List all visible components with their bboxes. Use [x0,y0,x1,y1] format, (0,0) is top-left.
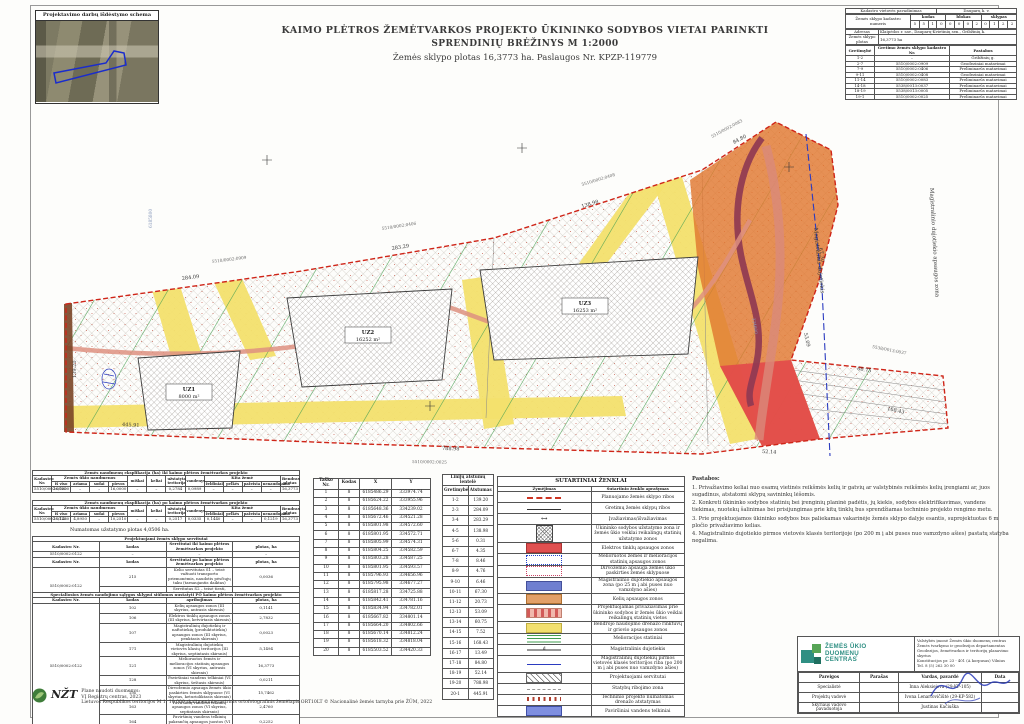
edge-dimension: 788.98 [442,446,460,452]
legend-row: Projektuojamas privažiavimas prie ūkinin… [498,605,685,622]
table-cell: 8 [339,589,360,597]
legend-row: Ūkininko sodybos užstatymo zona ir žemės… [498,525,685,543]
table-row: 14-157.52 [443,628,494,638]
table-cell [860,692,899,702]
table-row: 5510/0002:012216,0000––16,0000––0,27840,… [33,487,300,492]
table-cell: 16,0000 [52,487,71,492]
table-cell: 0,0211 [233,676,300,686]
table-cell: 6185796.93 [360,572,392,580]
table-cell: 5510/0002:0122 [33,487,52,492]
table-cell: 0,1141 [233,603,300,613]
data-source-footer: NŽT Plane naudoti duomenys: VĮ Registrų … [32,688,462,706]
project-title-line2: SPRENDINIŲ BRĖŽINYS M 1:2000 [280,38,770,52]
table-cell: 283.29 [468,516,494,526]
legend-description: Gretimų žemės sklypų ribos [591,503,685,514]
table-row: 1886185670.14334812.24 [314,630,431,638]
table-cell: 13 [314,589,339,597]
table-row: 786185805.99334574.31 [314,539,431,547]
legend-row: Gretimų žemės sklypų ribos [498,503,685,514]
table-cell: 4.35 [468,546,494,556]
table-cell: 6185670.14 [360,630,392,638]
table-cell: 4-5 [443,526,469,536]
legend-row: Dirvožemio apsauga žemės ūkio paskirties… [498,566,685,578]
explication-before-table: Žemės naudmenų eksplikacija (ha) iki kai… [32,470,300,493]
legend-swatch-cell [498,706,592,717]
table-cell: 334420.33 [392,647,431,655]
table-cell: 53.09 [468,607,494,617]
table-cell: 128 [99,676,166,686]
project-title-line3: Žemės sklypo plotas 16,3773 ha. Paslaugo… [280,52,770,66]
water-fill-icon [526,706,562,716]
table-cell: 8 [339,539,360,547]
table-cell: 16,3773 [233,657,300,676]
table-cell: 5 [314,523,339,531]
table-cell: 334818.04 [392,639,431,647]
aerial-photo [36,21,158,102]
table-row: 5510/0002:0122102Kelių apsaugos zonos (I… [33,603,300,613]
table-cell: 6185618.32 [360,639,392,647]
title-block-organization: ŽEMĖS ŪKIO DUOMENŲ CENTRAS Valstybės įmo… [797,636,1020,714]
legend-description: Magistralinio dujotiekio apsaugos zona (… [591,577,685,594]
pink-el-icon [526,608,562,618]
table-row: 1186185796.93334656.96 [314,572,431,580]
table-cell: 0,2784 [166,487,185,492]
table-cell: 6185804.25 [360,547,392,555]
table-cell: Skyriaus vadovo pavaduotoja [799,702,860,713]
edge-dimension: 445.91 [122,422,140,429]
table-cell: 6185486.29 [360,489,392,497]
table-cell: 5,1494 [233,642,300,656]
table-cell: 0.31 [468,536,494,546]
schema-title: Projektavimo darbų išdėstymo schema [36,11,158,21]
table-cell: 334574.31 [392,539,431,547]
table-row: 1386185817.28334725.88 [314,589,431,597]
legend-row: dMagistralinis dujotiekis [498,644,685,655]
table-row: 19-15510/0002:0025Preliminarūs matavimai [846,94,1017,99]
table-cell: 8 [339,639,360,647]
table-cell: 334677.27 [392,581,431,589]
table-cell: 8 [339,498,360,506]
legend-swatch-cell [498,554,592,566]
table-cell: 334656.96 [392,572,431,580]
table-cell: 334521.28 [392,514,431,522]
legend-swatch-cell [498,633,592,644]
table-cell: Paviršiniai vandens telkiniai (VI skyriu… [166,676,233,686]
table-row: 286185624.22333955.96 [314,498,431,506]
distances-title: Linijų atstumų lentelė [443,475,494,486]
table-cell: 6.46 [468,577,494,587]
table-row: 11-1220.73 [443,597,494,607]
legend-table: SUTARTINIAI ŽENKLAI Žymėjimas Sutartinio… [497,476,685,717]
table-cell: 8 [339,556,360,564]
zudc-logo-icon [800,643,822,665]
table-row: 886185804.25334582.59 [314,547,431,555]
blue-dot-icon [526,555,562,565]
neighbour-cad-label: 5510/0002:0406 [381,221,416,231]
table-cell: 4 [314,514,339,522]
table-row: Skyriaus vadovo pavaduotojaJustinas Kači… [799,702,1019,713]
vietove-value: Dauparų k. v. [937,9,1017,14]
legend-description: Statybų ribojimo zona [591,683,685,694]
uz1-area: 8000 m² [178,394,199,400]
table-cell: 334812.24 [392,630,431,638]
table-row: 1986185618.32334818.04 [314,639,431,647]
table-cell: 15,1460 [52,517,71,522]
note-item: 2. Konkreti ūkininko sodybos statinių be… [692,500,1010,514]
legend-description: Projektuojami servitutai [591,672,685,683]
edge-dimension: 283.29 [391,243,409,252]
table-cell: 6185667.82 [360,614,392,622]
legend-swatch-cell [498,672,592,683]
title-block: KAIMO PLĖTROS ŽEMĖTVARKOS PROJEKTO ŪKINI… [280,24,770,65]
table-row: 16-1713.49 [443,648,494,658]
neighbour-cad-label: 5510/0002:0025 [412,459,447,465]
table-row: 8-94.76 [443,567,494,577]
table-row: 2086185503.52334420.33 [314,647,431,655]
table-cell: 6185672.46 [360,514,392,522]
table-cell: 11 [314,572,339,580]
table-cell: 8 [339,606,360,614]
signature-table: Pareigos Parašas Vardas, pavardė Data Sp… [798,672,1019,714]
table-cell: 334572.71 [392,531,431,539]
table-cell: 0,0335 [185,517,204,522]
legend-row: Elektros tinklų apsaugos zonos [498,543,685,554]
table-row: SpecialistėInna Aleksiejeva (29-KP-105) [799,682,1019,692]
legend-row: Bendrojo naudojimo drenažo rinktuvų ir g… [498,622,685,634]
neighbours-table: Gretimybė Gretimo žemės sklypo kadastro … [845,45,1017,100]
table-cell: Ivona Lenartovičiūtė (29-KP-582) [899,692,982,702]
notes-title: Pastabos: [692,476,1010,483]
table-cell: – [71,487,90,492]
legend-description: Elektros tinklų apsaugos zonos [591,543,685,554]
buildup-area-note: Numatomas užstatymo plotas 4,0506 ha. [70,528,169,533]
legend-swatch-cell [498,594,592,605]
table-cell: 334801.14 [392,614,431,622]
table-cell: 7.52 [468,628,494,638]
table-cell: 8 [339,514,360,522]
hatch-blocks-icon [536,525,553,542]
table-cell: 334782.01 [392,606,431,614]
table-cell: 14 [314,597,339,605]
table-cell: 334239.02 [392,506,431,514]
table-cell: 0,1219 [261,517,280,522]
table-cell: 7 [314,539,339,547]
table-cell: 20 [314,647,339,655]
table-cell: 6185795.98 [360,581,392,589]
legend-swatch-cell [498,694,592,706]
legend-row: Kelių apsaugos zonos [498,594,685,605]
table-cell: 8-9 [443,567,469,577]
table-cell: Kelių apsaugos zonos (III skyrius, antra… [166,603,233,613]
cadastre-number-table: Žemės sklypo kadastro numeris kodas blok… [845,14,1017,28]
table-cell: 168.43 [468,638,494,648]
table-row: 5-60.31 [443,536,494,546]
edge-dimension: 139.20 [72,361,78,379]
table-cell: 17 [314,622,339,630]
neighbour-cad-label: 5538/0013:0037 [872,344,907,356]
legend-description: Paviršiniai vandens telkiniai [591,706,685,717]
table-cell: 6185834.94 [360,606,392,614]
table-cell: – [90,517,109,522]
grid-coordinate-label: 6185800 [149,209,154,228]
legend-description: Įvažiavimas/išvažiavimas [591,514,685,525]
arrow-icon: ↔ [527,515,561,523]
neighbour-cad-label: 5510/0002:0909 [212,255,247,264]
neighbour-cad-label: 5510/0002:0408 [581,172,616,187]
table-cell: 0,2252 [233,715,300,724]
legend-row: Magistralinio dujotiekio apsaugos zona (… [498,577,685,594]
table-cell: 0,1440 [204,517,223,522]
table-cell: 19 [314,639,339,647]
table-row: 1686185667.82334801.14 [314,614,431,622]
table-cell: 8.46 [468,556,494,566]
table-cell: 6185503.52 [360,647,392,655]
table-cell: 8 [339,572,360,580]
table-row: 13-1460.75 [443,618,494,628]
legend-description: Ūkininko sodybos užstatymo zona ir žemės… [591,525,685,543]
legend-swatch-cell [498,543,592,554]
table-cell: 8 [339,614,360,622]
legend-description: Dirvožemio apsauga žemės ūkio paskirties… [591,566,685,578]
legend-swatch-cell [498,503,592,514]
table-cell: 20.73 [468,597,494,607]
table-cell: 8 [339,647,360,655]
legend-description: Projektuojamas privažiavimas prie ūkinin… [591,605,685,622]
legend-row: Melioruotos žemės ir melioracijos statin… [498,554,685,566]
table-cell: 3 [314,506,339,514]
table-cell: 334802.66 [392,622,431,630]
cadastre-info-box: Kadastro vietovės pavadinimas Dauparų k.… [845,8,1017,100]
table-cell: 9 [314,556,339,564]
table-cell: 52.14 [468,669,494,679]
table-cell: 6185801.98 [360,523,392,531]
table-cell: Magistralinių dujotiekių vietovės klasių… [166,642,233,656]
uz3-code: UZ3 [579,301,592,307]
nzt-abbr: NŽT [51,688,77,702]
table-row: 12-1353.09 [443,607,494,617]
legend-row: Melioracijos statiniai [498,633,685,644]
legend-swatch-cell [498,492,592,503]
table-cell: 8 [339,506,360,514]
table-cell: 6 [314,531,339,539]
table-cell: – [147,487,166,492]
table-cell: 5-6 [443,536,469,546]
table-cell: 16,3773 [280,517,299,522]
edge-dimension: 52.14 [762,449,777,456]
dashed-red-icon [527,497,561,499]
table-cell: 4.76 [468,567,494,577]
table-cell: 3-4 [443,516,469,526]
table-cell: Magistralinių dujotiekių ir naftotiekių … [166,623,233,642]
table-row: 5510/0002:012215,14604,8950–10,2510––0,2… [33,517,300,522]
table-row: 2-3284.09 [443,506,494,516]
table-row: 1786185664.20334802.66 [314,622,431,630]
location-schema-box: Projektavimo darbų išdėstymo schema [35,10,159,104]
table-cell: – [128,517,147,522]
table-cell: 17-18 [443,658,469,668]
table-cell: 6185803.28 [360,556,392,564]
coordinates-table: Taško Nr. Kodas X Y 186185486.29333974.7… [313,478,431,656]
table-cell: 8 [339,531,360,539]
table-row: 1-2139.20 [443,495,494,505]
table-cell: 6185801.95 [360,564,392,572]
table-row: 1286185795.98334677.27 [314,581,431,589]
table-cell: Paviršinių vandens telkinių pakrančių ap… [166,715,233,724]
org-name: ŽEMĖS ŪKIO DUOMENŲ CENTRAS [825,644,867,664]
table-row: 186185486.29333974.74 [314,489,431,497]
table-row: 1586185834.94334782.01 [314,606,431,614]
table-cell: 10 [314,564,339,572]
legend-row: Paviršiniai vandens telkiniai [498,706,685,717]
solid-line-icon [527,509,561,510]
yellow-fill-icon [526,623,562,633]
table-cell: 8 [314,547,339,555]
legend-row: Magistralinių dujotiekių pirmos vietovės… [498,655,685,672]
nzt-logo-icon [32,688,47,703]
table-cell: 215 [99,567,166,586]
table-cell: 139.20 [468,495,494,505]
legend-row: ↔Įvažiavimas/išvažiavimas [498,514,685,525]
legend-row: Techninio projekto numatomas drenažo ats… [498,694,685,706]
table-cell: 5510/0002:0025 [875,94,950,99]
table-cell: 84.80 [468,658,494,668]
table-cell: 106 [99,613,166,623]
legend-swatch-cell [498,605,592,622]
legend-swatch-cell: d [498,644,592,655]
table-cell: 445.91 [468,689,494,699]
legend-row: Statybų ribojimo zona [498,683,685,694]
table-cell: 7-8 [443,556,469,566]
uz3-area: 16253 m² [573,308,597,314]
table-cell: 121 [99,657,166,676]
table-cell: 8 [339,489,360,497]
neigh-col1: Gretimybė [846,46,875,56]
note-item: 3. Prie projektuojamos ūkininko sodybos … [692,516,1010,530]
table-cell: 1-2 [443,495,469,505]
table-cell: 333974.74 [392,489,431,497]
pink-dot-icon [526,566,562,576]
blue-fill-icon [526,581,562,591]
table-cell: Specialistė [799,682,860,692]
table-cell: 2,7832 [233,613,300,623]
table-cell: 2-3 [443,506,469,516]
table-cell: 6185842.41 [360,597,392,605]
neighbour-cad-label: 5510/0002:0083 [710,118,743,139]
neigh-col3: Pastabos [950,46,1017,56]
table-cell: 334572.60 [392,523,431,531]
legend-title: SUTARTINIAI ŽENKLAI [498,477,685,487]
legend-swatch-cell [498,525,592,543]
table-cell: 334781.16 [392,597,431,605]
table-cell: 0,0036 [233,567,300,586]
table-cell: – [204,487,223,492]
table-cell: 8 [339,523,360,531]
table-cell: 16-17 [443,648,469,658]
gray-dash-icon [527,689,561,690]
site-plan-map: UZ1 8000 m² UZ2 16252 m² UZ3 16253 m² Ma… [62,108,950,466]
uz2-code: UZ2 [362,330,375,336]
table-row: 15-16168.43 [443,638,494,648]
table-cell: 6185648.36 [360,506,392,514]
table-cell: 4,8950 [71,517,90,522]
table-cell: 788.98 [468,679,494,689]
table-cell: 164 [99,715,166,724]
table-cell: 333955.96 [392,498,431,506]
table-row: 686185801.95334572.71 [314,531,431,539]
table-cell: 19-1 [846,94,875,99]
table-cell: Projektų vadovė [799,692,860,702]
table-row: 4-5138.98 [443,526,494,536]
table-cell: 102 [99,603,166,613]
table-cell: – [90,487,109,492]
table-cell: – [242,517,261,522]
diag-hatch-icon [526,673,562,683]
table-row: Projektų vadovėIvona Lenartovičiūtė (29-… [799,692,1019,702]
table-cell: 334593.57 [392,564,431,572]
table-cell: Elektros tinklų apsaugos zonos (III skyr… [166,613,233,623]
legend-description: Kelių apsaugos zonos [591,594,685,605]
legend-swatch-cell [498,655,592,672]
address-table: Adresas Klaipėdos r. sav., Dauparų-Kviet… [845,29,1017,45]
table-cell: 284.09 [468,506,494,516]
table-cell: 12 [314,581,339,589]
legend-swatch-cell [498,622,592,634]
legend-description: Magistralinių dujotiekių pirmos vietovės… [591,655,685,672]
plotas-label: Žemės sklypo plotas [846,35,879,45]
table-cell: 13-14 [443,618,469,628]
table-row: 586185801.98334572.60 [314,523,431,531]
red-fill-icon [526,543,562,553]
table-cell: 6185624.22 [360,498,392,506]
legend-description: Melioracijos statiniai [591,633,685,644]
table-cell: 8 [339,581,360,589]
table-row: 1486185842.41334781.16 [314,597,431,605]
table-cell: 8 [339,630,360,638]
legend-swatch-cell [498,683,592,694]
table-row: 18-1952.14 [443,669,494,679]
table-row: 986185803.28334587.25 [314,556,431,564]
table-cell: Justinas Kačiuška [899,702,982,713]
table-cell: 0,2517 [166,517,185,522]
table-cell: 6185801.95 [360,531,392,539]
edge-dimension: 53.09 [802,332,811,347]
legend-swatch-cell [498,566,592,578]
legend-description: Planuojamo žemės sklypo ribos [591,492,685,503]
table-cell: 8 [339,597,360,605]
project-title-line1: KAIMO PLĖTROS ŽEMĖTVARKOS PROJEKTO ŪKINI… [280,24,770,38]
table-cell: 16,0000 [109,487,128,492]
table-cell: 11-12 [443,597,469,607]
table-cell: – [147,517,166,522]
legend-description: Melioruotos žemės ir melioracijos statin… [591,554,685,566]
notes-block: Pastabos: 1. Privažiavimo keliai nuo esa… [692,476,1010,547]
table-cell [860,702,899,713]
legend-swatch-cell [498,577,592,594]
table-row: 486185672.46334521.28 [314,514,431,522]
table-row: 5510/0002:0122215Kelio servitutas S1 – t… [33,567,300,586]
table-cell: Inna Aleksiejeva (29-KP-105) [899,682,982,692]
table-cell: – [242,487,261,492]
uz2-area: 16252 m² [356,337,380,343]
table-cell [982,692,1019,702]
legend-description: Bendrojo naudojimo drenažo rinktuvų ir g… [591,622,685,634]
table-cell: 8 [339,547,360,555]
table-cell: – [261,487,280,492]
table-cell: 18-19 [443,669,469,679]
table-cell: 12-13 [443,607,469,617]
orange-fill-icon [526,594,562,604]
table-row: 7-88.46 [443,556,494,566]
